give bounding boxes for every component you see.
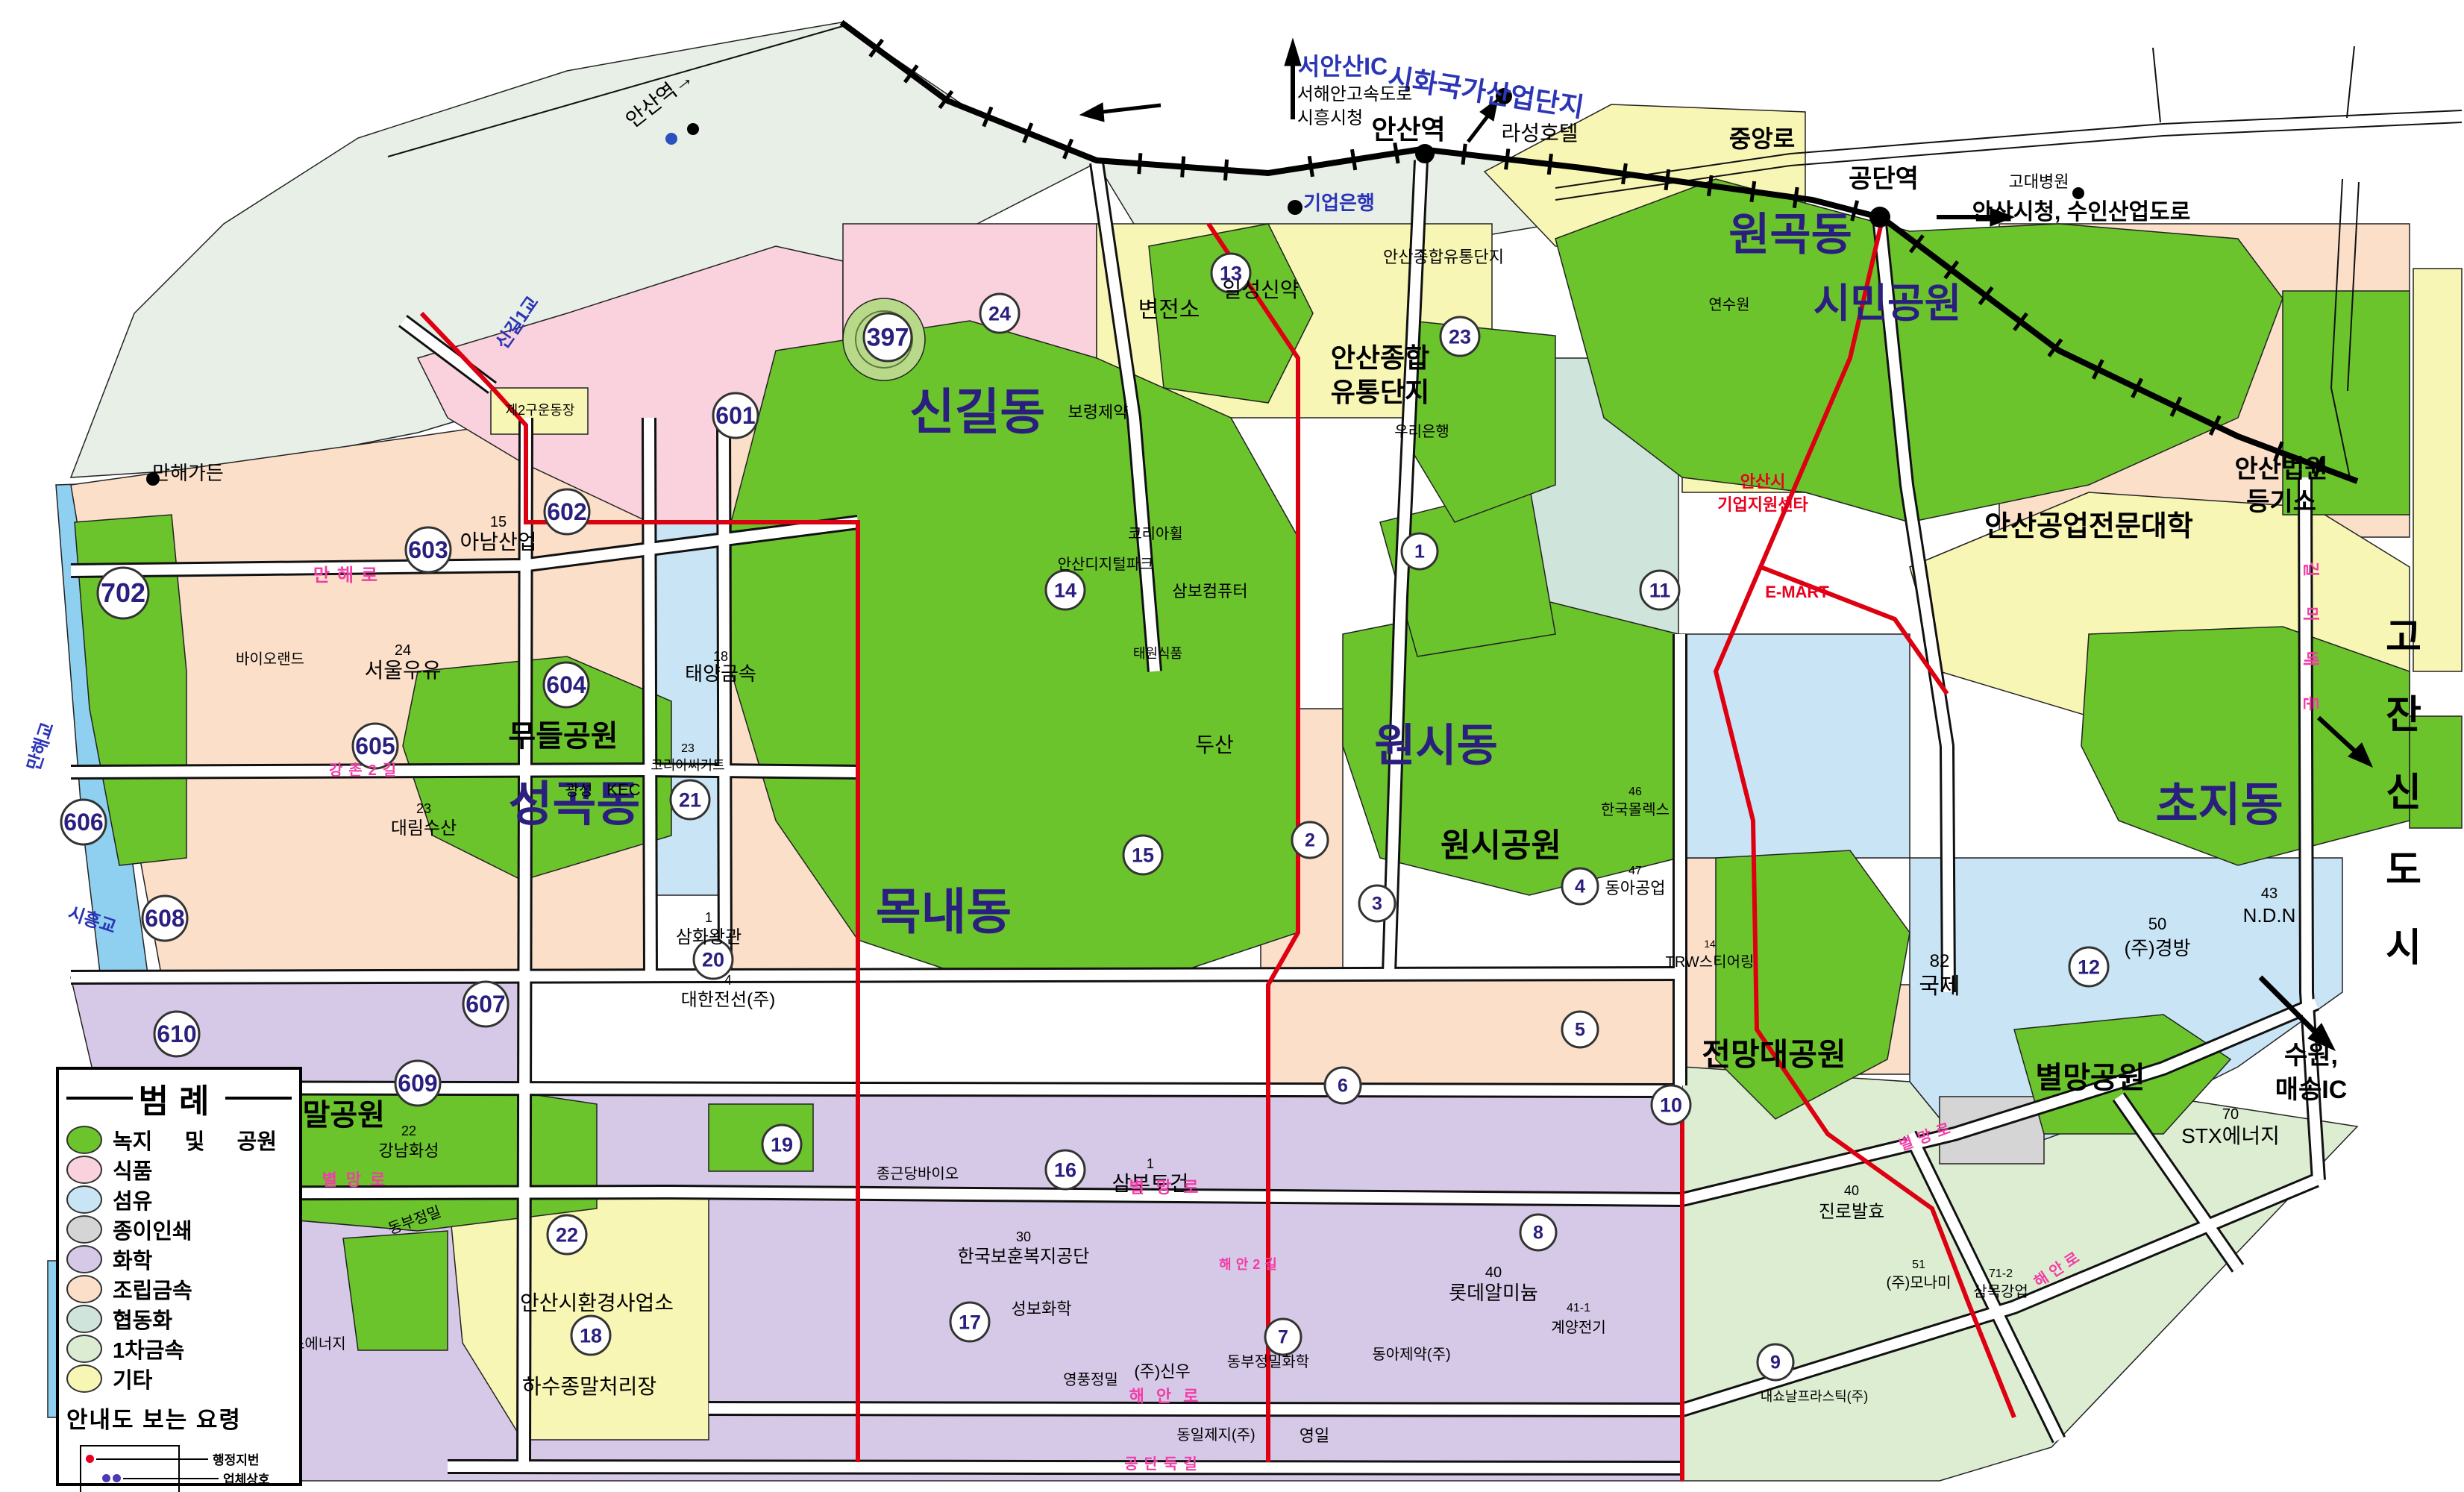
legend-guide-label-2: 블럭로트 (233, 1488, 280, 1492)
places-label-5: 안산종합 (1331, 342, 1429, 373)
edge-label-6: 공단역 (1849, 165, 1919, 193)
legend-title-line-right (225, 1097, 292, 1100)
places-label-63: N.D.N (2243, 904, 2296, 927)
road-stub-1 (2153, 48, 2160, 122)
edge-label-11: 수원, (2284, 1041, 2338, 1070)
map-canvas: 7026066086106116096076056046036026013972… (0, 0, 2464, 1492)
places-label-11: 삼보컴퓨터 (1172, 582, 1247, 601)
svg-text:6: 6 (1338, 1076, 1348, 1097)
roads-label-8: 공단둑길 (1124, 1455, 1203, 1473)
svg-text:24: 24 (988, 302, 1011, 325)
legend-swatch-6 (66, 1305, 102, 1333)
svg-text:23: 23 (1449, 325, 1471, 348)
block-circle-10: 10 (1652, 1085, 1690, 1124)
zone-green-jeonmangdae (1716, 850, 1910, 1119)
svg-text:16: 16 (1054, 1159, 1076, 1181)
svg-text:606: 606 (63, 809, 103, 836)
svg-text:5: 5 (1575, 1020, 1585, 1041)
svg-text:17: 17 (959, 1311, 981, 1333)
svg-text:3: 3 (1372, 894, 1382, 915)
block-circle-5: 5 (1562, 1012, 1598, 1047)
roads-label-3: 별망로 (1129, 1178, 1211, 1197)
svg-text:9: 9 (1770, 1352, 1781, 1373)
roads-label-5: 해안로 (1129, 1387, 1211, 1405)
legend-items: 녹지 및 공원식품섬유종이인쇄화학조립금속협동화1차금속기타 (66, 1125, 292, 1394)
places-label-36: 성보화학 (1012, 1300, 1072, 1318)
svg-text:601: 601 (715, 402, 755, 429)
ansan-station-dot (1415, 144, 1435, 163)
districts-label-2: 목내동 (876, 884, 1012, 939)
places-label-21: 23 (416, 801, 431, 816)
block-circle-18: 18 (571, 1316, 610, 1355)
svg-text:702: 702 (101, 577, 145, 608)
places-label-43: 롯데알미늄 (1449, 1282, 1538, 1304)
roads-label-0: 만해로 (313, 565, 385, 586)
legend-label-2: 섬유 (113, 1184, 277, 1215)
places-label-74: 안산공업전문대학 (1984, 511, 2193, 542)
block-circle-6: 6 (1325, 1068, 1361, 1103)
svg-text:397: 397 (867, 324, 909, 352)
legend-swatch-8 (66, 1364, 102, 1393)
places-label-66: 70 (2222, 1106, 2239, 1123)
districts-label-6: 시민공원 (1813, 281, 1962, 326)
roads-label-1: 강촌2길 (329, 762, 402, 779)
places-label-67: 진로발효 (1819, 1202, 1884, 1222)
block-circle-7: 7 (1265, 1319, 1301, 1355)
korea-univ-hospital-dot (2072, 187, 2084, 199)
places-label-23: 아남산업 (460, 530, 536, 554)
edge-label-14: 잔 (2386, 694, 2421, 737)
svg-text:20: 20 (702, 948, 724, 971)
places-label-58: 14 (1704, 938, 1716, 950)
legend-guide-label-0: 행정지번 (213, 1449, 260, 1468)
legend-item-2: 섬유 (66, 1185, 292, 1214)
ansan-industrial-complex-map: 7026066086106116096076056046036026013972… (0, 0, 2464, 1492)
legend-label-3: 종이인쇄 (113, 1214, 277, 1245)
places-label-47: 안산시환경사업소 (520, 1291, 674, 1314)
places-label-38: (주)신우 (1134, 1362, 1190, 1381)
places-label-33: 30 (1016, 1229, 1031, 1244)
parks-label-2: 전망대공원 (1702, 1037, 1846, 1072)
block-circle-702: 702 (98, 568, 148, 618)
places-label-56: 47 (1628, 865, 1642, 877)
places-label-0: 만해가든 (152, 462, 224, 484)
red-label-2: E-MART (1765, 583, 1829, 601)
places-label-4: 안산종합유통단지 (1383, 248, 1504, 266)
legend-label-1: 식품 (113, 1154, 277, 1185)
ibk-bank-dot (1288, 200, 1302, 215)
places-label-68: 40 (1844, 1183, 1859, 1198)
places-label-14: 태양금속 (685, 662, 756, 685)
legend-guide-item-0: 행정지번 (86, 1449, 260, 1468)
places-label-44: 40 (1485, 1264, 1502, 1281)
svg-text:609: 609 (398, 1070, 437, 1097)
block-circle-15: 15 (1123, 836, 1162, 874)
roads-label-11: 배 (2301, 651, 2320, 666)
districts-label-5: 초지동 (2155, 780, 2283, 831)
edge-label-15: 신 (2386, 771, 2421, 815)
places-label-61: (주)경방 (2124, 937, 2190, 959)
svg-text:18: 18 (580, 1324, 602, 1347)
block-circle-14: 14 (1046, 571, 1085, 609)
places-label-55: 동아공업 (1605, 879, 1666, 897)
edge-label-2: 시흥시청 (1297, 108, 1363, 128)
blue-marker-dot (665, 133, 677, 145)
places-label-18: 서울우유 (364, 659, 441, 682)
edge-label-17: 시 (2386, 927, 2421, 970)
places-label-7: 우리은행 (1394, 423, 1449, 440)
svg-text:608: 608 (145, 905, 184, 932)
edge-label-10: 등기소 (2246, 488, 2316, 516)
places-label-3: 보령제약 (1068, 403, 1129, 421)
zone-textile-mid (1678, 634, 1910, 858)
edge-label-4: 라성호텔 (1501, 122, 1578, 145)
places-label-73: 내쇼날프라스틱(주) (1761, 1389, 1868, 1404)
places-label-42: 영일 (1300, 1426, 1329, 1445)
places-label-6: 유통단지 (1331, 377, 1429, 407)
edge-label-5: 중앙로 (1729, 125, 1795, 152)
block-circle-23: 23 (1441, 317, 1479, 356)
roads-label-9: 길 (2301, 562, 2320, 577)
places-label-53: 한국몰렉스 (1601, 801, 1670, 818)
edge-label-8: 고대병원 (2009, 172, 2069, 191)
places-label-19: 24 (395, 642, 411, 659)
edge-label-12: 매송IC (2275, 1076, 2348, 1104)
block-circle-8: 8 (1520, 1214, 1556, 1250)
legend-item-8: 기타 (66, 1364, 292, 1394)
block-circle-24: 24 (980, 294, 1019, 333)
places-label-62: 50 (2148, 915, 2166, 933)
edge-label-1: 서해안고속도로 (1297, 84, 1413, 104)
places-label-20: 대림수산 (391, 818, 457, 839)
places-label-39: 동부정밀화학 (1227, 1353, 1309, 1370)
svg-text:14: 14 (1054, 579, 1076, 601)
roads-label-12: 둔 (2301, 696, 2320, 711)
places-label-16: 코리아써키트 (651, 758, 724, 773)
legend-label-7: 1차금속 (113, 1333, 277, 1364)
places-label-15: 18 (713, 649, 728, 664)
svg-text:11: 11 (1649, 579, 1671, 601)
block-circle-602: 602 (545, 489, 589, 534)
block-circle-4: 4 (1562, 868, 1598, 904)
places-label-10: 코리아휠 (1128, 525, 1183, 542)
block-circle-17: 17 (950, 1303, 989, 1341)
arrow-to-sihwa (1080, 103, 1161, 122)
places-label-41: 동일제지(주) (1176, 1426, 1255, 1444)
places-label-70: 51 (1912, 1259, 1925, 1271)
legend-swatch-3 (66, 1215, 102, 1244)
legend-guide-dot-1-1 (113, 1474, 121, 1482)
block-circle-19: 19 (762, 1125, 801, 1164)
places-label-17: 23 (681, 742, 695, 755)
legend-label-4: 화학 (113, 1244, 277, 1275)
block-circle-608: 608 (142, 896, 187, 941)
block-circle-601: 601 (713, 393, 758, 438)
places-label-32: 한국보훈복지공단 (958, 1247, 1090, 1267)
red-label-0: 안산시 (1740, 472, 1786, 491)
legend-swatch-5 (66, 1275, 102, 1303)
places-label-22: 바이오랜드 (236, 651, 304, 668)
block-circle-16: 16 (1046, 1150, 1085, 1189)
block-circle-9: 9 (1758, 1344, 1793, 1380)
legend-item-5: 조립금속 (66, 1274, 292, 1304)
legend-swatch-7 (66, 1335, 102, 1363)
places-label-75: 제2구운동장 (506, 403, 575, 418)
places-label-26: KEC (606, 780, 640, 799)
legend-item-7: 1차금속 (66, 1334, 292, 1364)
gongdan-station-dot (1869, 207, 1890, 228)
places-label-60: 82 (1930, 951, 1950, 971)
legend-title-line-left (66, 1097, 133, 1100)
svg-text:8: 8 (1533, 1223, 1543, 1244)
svg-text:1: 1 (1414, 542, 1425, 562)
edge-label-16: 도 (2386, 849, 2421, 892)
block-circle-609: 609 (395, 1061, 440, 1106)
block-circle-607: 607 (463, 982, 508, 1026)
blue-label-0: 서안산IC (1298, 53, 1388, 80)
edge-label-9: 안산법원 (2234, 455, 2327, 483)
places-label-28: 1 (705, 910, 712, 925)
legend-label-8: 기타 (113, 1363, 277, 1394)
legend-swatch-4 (66, 1245, 102, 1273)
block-circle-11: 11 (1640, 571, 1679, 609)
legend-item-6: 협동화 (66, 1304, 292, 1334)
places-label-2: 일성신약 (1222, 278, 1299, 301)
svg-text:2: 2 (1305, 830, 1315, 851)
places-label-71: 삼목강업 (1973, 1283, 2028, 1300)
svg-text:4: 4 (1575, 877, 1585, 897)
places-label-50: 강남화성 (379, 1141, 439, 1160)
edge-label-7: 안산시청, 수인산업도로 (1972, 200, 2191, 225)
places-label-40: 동아제약(주) (1372, 1346, 1450, 1363)
parks-label-3: 별망공원 (2035, 1062, 2145, 1094)
legend-guide-label-1: 업체상호 (223, 1469, 270, 1488)
legend-item-1: 식품 (66, 1155, 292, 1185)
places-label-69: (주)모나미 (1887, 1274, 1952, 1291)
block-circle-603: 603 (406, 527, 451, 572)
block-circle-21: 21 (671, 780, 709, 819)
road-stub-2 (2347, 46, 2354, 118)
places-label-46: 41-1 (1567, 1302, 1590, 1314)
edge-label-3: 안산역 (1371, 114, 1445, 145)
places-label-27: 삼화왕관 (676, 927, 742, 947)
block-circle-606: 606 (61, 800, 106, 844)
block-circle-2: 2 (1292, 822, 1328, 858)
block-circle-605: 605 (353, 724, 398, 768)
block-circle-610: 610 (154, 1012, 199, 1056)
places-label-45: 계양전기 (1551, 1319, 1606, 1336)
svg-text:602: 602 (547, 498, 586, 525)
places-label-12: 태원식품 (1133, 646, 1182, 661)
places-label-13: 두산 (1195, 733, 1234, 756)
legend-guide-line-0 (96, 1458, 208, 1460)
svg-text:12: 12 (2078, 956, 2100, 978)
block-circle-22: 22 (548, 1215, 586, 1254)
legend-swatch-2 (66, 1185, 102, 1214)
blue-label-5: 기업은행 (1303, 192, 1375, 214)
svg-text:605: 605 (355, 733, 395, 759)
legend-guide-item-1: 업체상호 (102, 1469, 270, 1488)
districts-label-3: 원시동 (1374, 721, 1498, 771)
roads-label-2: 별망로 (322, 1170, 395, 1189)
legend-guide-title: 안내도 보는 요령 (66, 1401, 292, 1435)
places-label-72: 71-2 (1989, 1267, 2013, 1280)
places-label-24: 15 (490, 514, 507, 530)
legend-swatch-0 (66, 1126, 102, 1154)
legend-item-4: 화학 (66, 1244, 292, 1274)
black-marker-dot (687, 123, 699, 135)
parks-label-0: 무들공원 (508, 720, 618, 753)
block-circle-1: 1 (1402, 533, 1438, 569)
legend-label-6: 협동화 (113, 1303, 277, 1335)
svg-text:21: 21 (679, 789, 701, 811)
places-label-37: 영풍정밀 (1063, 1371, 1118, 1388)
districts-label-4: 원곡동 (1728, 210, 1852, 260)
legend-guide-dot-1-0 (102, 1474, 110, 1482)
legend-title: 범례 (139, 1074, 220, 1122)
places-label-1: 변전소 (1138, 298, 1200, 322)
block-circle-397: 397 (864, 313, 912, 361)
svg-text:610: 610 (157, 1021, 196, 1047)
edge-label-13: 고 (2386, 616, 2421, 659)
legend-label-0: 녹지 및 공원 (113, 1124, 277, 1156)
places-label-29: 대한전선(주) (681, 990, 775, 1010)
places-label-25: 광성 (565, 782, 593, 799)
red-label-1: 기업지원센타 (1717, 495, 1808, 514)
places-label-64: 43 (2261, 886, 2278, 902)
svg-text:604: 604 (546, 671, 586, 698)
legend-title-row: 범례 (66, 1074, 292, 1122)
roads-label-7: 해안2길 (1219, 1256, 1282, 1272)
legend-item-0: 녹지 및 공원 (66, 1125, 292, 1155)
legend-item-3: 종이인쇄 (66, 1214, 292, 1244)
block-circle-12: 12 (2069, 947, 2108, 986)
places-label-8: 연수원 (1708, 296, 1749, 313)
legend-guide-item-2: 블럭로트 (119, 1488, 280, 1492)
places-label-35: 1 (1147, 1156, 1154, 1171)
svg-text:22: 22 (556, 1223, 578, 1246)
svg-text:603: 603 (408, 536, 448, 563)
places-label-59: 국제 (1919, 974, 1960, 999)
svg-text:7: 7 (1278, 1327, 1288, 1348)
places-label-51: 22 (401, 1123, 416, 1138)
legend-swatch-1 (66, 1156, 102, 1184)
svg-text:15: 15 (1132, 844, 1154, 866)
legend: 범례 녹지 및 공원식품섬유종이인쇄화학조립금속협동화1차금속기타 안내도 보는… (56, 1067, 302, 1486)
legend-guide-dot-0-0 (86, 1455, 94, 1463)
roads-label-10: 미 (2301, 606, 2320, 621)
places-label-54: 46 (1628, 786, 1642, 798)
legend-label-5: 조립금속 (113, 1273, 277, 1305)
svg-text:19: 19 (771, 1133, 793, 1156)
districts-label-0: 신길동 (909, 384, 1045, 439)
places-label-9: 안산디지털파크 (1058, 556, 1154, 573)
legend-guide-line-1 (123, 1478, 219, 1479)
places-label-30: 4 (724, 973, 732, 988)
svg-text:607: 607 (465, 991, 505, 1018)
places-label-65: STX에너지 (2181, 1124, 2280, 1147)
legend-guide-diagram: 행정지번업체상호블럭로트 (66, 1441, 292, 1492)
zone-east-edge-yellow (2413, 269, 2462, 671)
places-label-57: TRW스티어링 (1666, 953, 1755, 971)
blue-label-2: 만해교 (24, 720, 58, 773)
block-circle-3: 3 (1359, 886, 1395, 921)
zone-green-wongok-west (1410, 321, 1555, 522)
block-circle-604: 604 (544, 662, 589, 707)
svg-text:10: 10 (1660, 1094, 1682, 1116)
zone-green-south-a (343, 1231, 448, 1350)
places-label-48: 하수종말처리장 (522, 1375, 656, 1398)
parks-label-1: 원시공원 (1441, 827, 1561, 864)
places-label-31: 종근당바이오 (877, 1165, 959, 1182)
